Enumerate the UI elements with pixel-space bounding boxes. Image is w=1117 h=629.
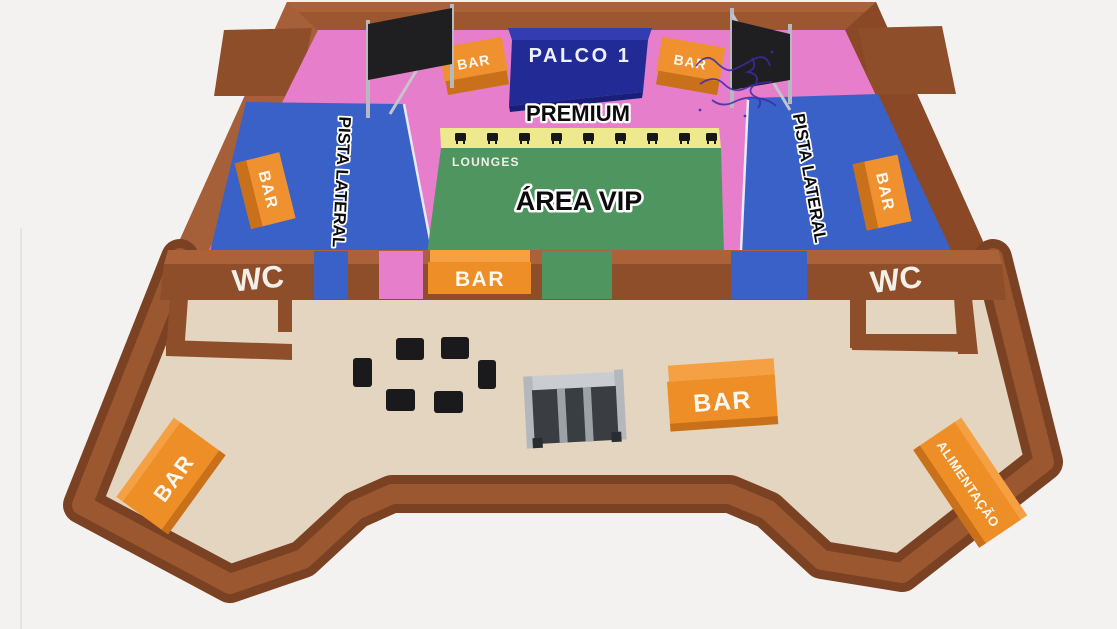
turnstile-foot (611, 432, 622, 443)
dividing-wall: BAR WC WC (160, 250, 1006, 300)
bar-lower-center: BAR (666, 358, 778, 431)
wc-right-label: WC (868, 259, 924, 300)
bench (434, 391, 463, 413)
vip-label: ÁREA VIP (516, 185, 643, 216)
lounges-strip[interactable] (440, 128, 721, 148)
wc-wall (278, 298, 292, 332)
wall-gate-opening[interactable] (314, 251, 348, 299)
bar-box-top (430, 250, 530, 263)
stage-label: PALCO 1 (529, 45, 632, 67)
turnstile-lanes (532, 386, 619, 444)
upper-wall-top-highlight (287, 2, 876, 12)
bench (353, 358, 372, 387)
lounges-label: LOUNGES (452, 155, 520, 169)
bench (396, 338, 424, 360)
entrance-turnstile[interactable] (523, 369, 627, 448)
right-wall-step (858, 26, 956, 94)
bar-label: BAR (455, 268, 505, 291)
bar-vip-wall: BAR (428, 250, 531, 294)
wall-gate-opening[interactable] (379, 251, 423, 299)
wc-left-label: WC (231, 258, 286, 298)
bench (386, 389, 415, 411)
wc-wall (850, 334, 972, 352)
wall-gate-opening[interactable] (542, 251, 612, 299)
bar-label: BAR (692, 386, 752, 418)
bench (441, 337, 469, 359)
bench (478, 360, 496, 389)
wall-gate-opening[interactable] (731, 251, 807, 299)
stage-top-face (508, 28, 652, 40)
background-artifact-line (20, 228, 22, 629)
premium-label: PREMIUM (526, 101, 630, 126)
turnstile-foot (532, 438, 543, 449)
upper-venue: PALCO 1 BAR BAR (168, 2, 994, 266)
venue-map: PALCO 1 BAR BAR (0, 0, 1117, 629)
